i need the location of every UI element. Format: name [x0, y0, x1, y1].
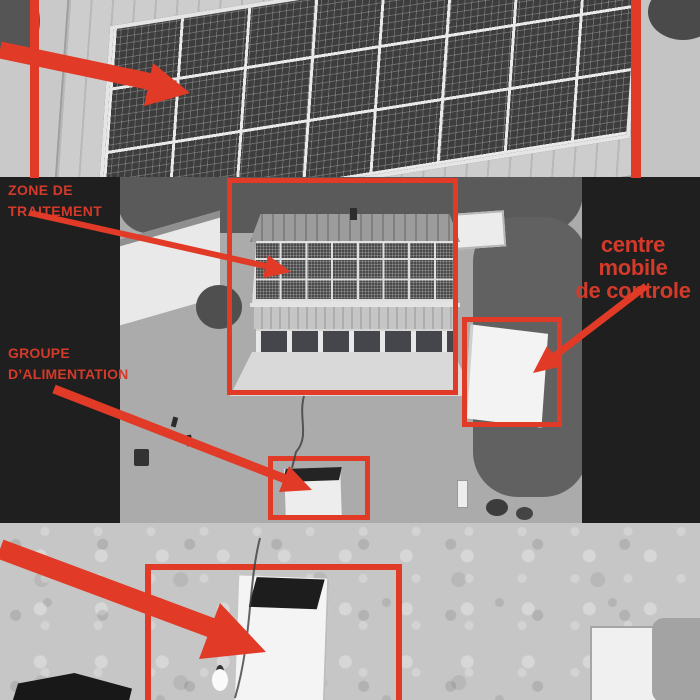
- dark-tarp: [12, 673, 132, 700]
- zone-de-traitement-label: ZONE DE TRAITEMENT: [8, 180, 102, 222]
- groupe-alimentation-label: GROUPE D’ALIMENTATION: [8, 343, 129, 385]
- equipment: [486, 499, 508, 516]
- centre-mobile-label: centre mobile de controle: [564, 233, 700, 302]
- person: [171, 417, 178, 428]
- zone-label-line1: ZONE DE: [8, 180, 102, 201]
- partial-highlight-box-left: [30, 0, 39, 178]
- groupe-label-line2: D’ALIMENTATION: [8, 364, 129, 385]
- bottom-highlight-box: [145, 564, 402, 700]
- building-highlight-box: [227, 178, 458, 395]
- gray-tarp: [652, 618, 700, 700]
- power-unit-highlight-box: [268, 456, 370, 520]
- greenhouse: [454, 210, 506, 249]
- centre-label-line1: centre mobile: [564, 233, 700, 279]
- partial-highlight-box-right: [631, 0, 641, 178]
- right-caption-panel: [582, 177, 700, 523]
- groupe-label-line1: GROUPE: [8, 343, 129, 364]
- equipment: [516, 507, 533, 520]
- ladder: [457, 480, 468, 508]
- zone-label-line2: TRAITEMENT: [8, 201, 102, 222]
- centre-label-line2: de controle: [564, 279, 700, 302]
- control-center-highlight-box: [462, 317, 562, 427]
- annotated-aerial-photo: ZONE DE TRAITEMENT GROUPE D’ALIMENTATION…: [0, 0, 700, 700]
- photo-solar-array-closeup: [0, 0, 700, 177]
- chair: [134, 449, 149, 466]
- person: [185, 435, 193, 447]
